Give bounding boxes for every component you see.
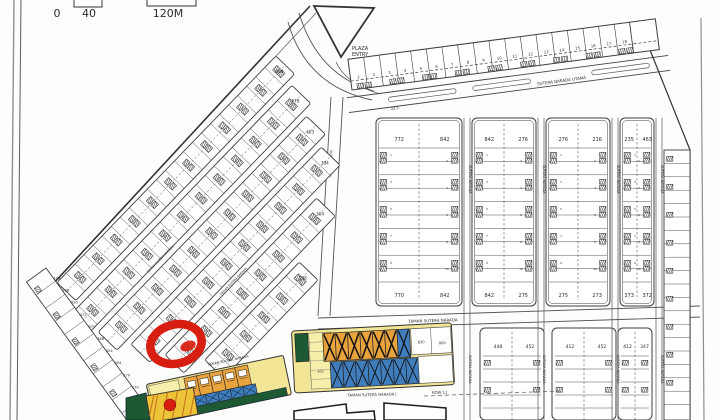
carport-hatch-icon <box>526 212 532 217</box>
boundary-lot-number: 304 <box>114 361 122 365</box>
house-footprint <box>238 369 247 377</box>
carport-hatch-icon <box>622 360 628 365</box>
carport-hatch-icon <box>627 47 634 53</box>
tiny-lot-number: 5 <box>390 207 392 211</box>
street-name-vertical: SUTERA NARADA <box>660 165 664 194</box>
carport-hatch-icon <box>667 324 673 329</box>
carport-hatch-icon <box>452 233 458 238</box>
carport-hatch-icon <box>606 387 612 392</box>
street-name-taman-row: TAMAN SUTERA NARADA I <box>346 391 396 397</box>
block-number: 452 <box>526 344 535 350</box>
tiny-lot-number: 1 <box>390 153 392 157</box>
carport-hatch-icon <box>520 61 527 67</box>
carport-hatch-icon <box>644 233 650 238</box>
carport-hatch-icon <box>667 240 673 245</box>
tiny-lot-number: 10 <box>593 267 597 271</box>
tiny-lot-number: 8 <box>638 240 640 244</box>
carport-hatch-icon <box>600 179 606 184</box>
carport-hatch-icon <box>526 239 532 244</box>
tiny-lot-number: 7 <box>560 234 562 238</box>
carport-hatch-icon <box>380 206 386 211</box>
carport-hatch-icon <box>561 56 568 62</box>
vertical-road-edge <box>330 97 343 316</box>
carport-hatch-icon <box>455 70 462 76</box>
house-footprint <box>187 380 196 388</box>
carport-hatch-icon <box>553 57 560 63</box>
lot-number-403: 403 <box>317 369 323 373</box>
tiny-lot-number: 7 <box>486 234 488 238</box>
carport-hatch-icon <box>550 233 556 238</box>
carport-hatch-icon <box>619 48 626 54</box>
boundary-lot-number: 324 <box>106 349 114 353</box>
row-11-label: ROW 11 <box>432 390 448 395</box>
tiny-lot-number: 4 <box>594 186 596 190</box>
carport-hatch-icon <box>452 239 458 244</box>
carport-hatch-icon <box>624 158 630 163</box>
carport-hatch-icon <box>644 158 650 163</box>
carport-hatch-icon <box>476 239 482 244</box>
scale-tick-120m: 120M <box>153 7 184 20</box>
carport-hatch-icon <box>600 206 606 211</box>
block-number: 842 <box>485 293 495 299</box>
tiny-lot-number: 6 <box>520 213 522 217</box>
carport-hatch-icon <box>600 158 606 163</box>
block-number: 842 <box>440 137 450 143</box>
carport-hatch-icon <box>452 212 458 217</box>
street-name-vertical: SUTERA NARADA <box>468 355 472 384</box>
carport-hatch-icon <box>476 266 482 271</box>
carport-hatch-icon <box>526 152 532 157</box>
carport-hatch-icon <box>463 69 470 75</box>
tiny-lot-number: 1 <box>634 153 636 157</box>
scale-tick-0: 0 <box>54 7 61 20</box>
tiny-lot-number: 7 <box>390 234 392 238</box>
carport-hatch-icon <box>528 60 535 66</box>
carport-hatch-icon <box>380 179 386 184</box>
block-number: 276 <box>559 137 569 143</box>
tiny-lot-number: 7 <box>634 234 636 238</box>
house-footprint <box>213 375 222 383</box>
street-name-vertical: SUTERA NARADA <box>660 355 664 384</box>
house-footprint <box>200 377 209 385</box>
carport-hatch-icon <box>667 212 673 217</box>
carport-hatch-icon <box>624 260 630 265</box>
tiny-lot-number: 6 <box>594 213 596 217</box>
carport-hatch-icon <box>452 260 458 265</box>
tiny-lot-number: 2 <box>520 159 522 163</box>
street-width-dim: 22.5 <box>391 106 399 111</box>
carport-hatch-icon <box>452 206 458 211</box>
carport-hatch-icon <box>484 387 490 392</box>
mid-street-edge <box>318 306 700 318</box>
carport-hatch-icon <box>644 206 650 211</box>
east-lot-column <box>664 150 690 420</box>
carport-hatch-icon <box>452 266 458 271</box>
carport-hatch-icon <box>476 158 482 163</box>
tiny-lot-number: 9 <box>634 261 636 265</box>
strip-corner-number: 198 <box>299 275 307 280</box>
carport-hatch-icon <box>496 65 503 71</box>
tiny-lot-number: 1 <box>486 153 488 157</box>
building-outline <box>384 403 446 420</box>
carport-hatch-icon <box>526 158 532 163</box>
carport-hatch-icon <box>600 266 606 271</box>
tiny-lot-number: 3 <box>390 180 392 184</box>
carport-hatch-icon <box>398 77 405 83</box>
carport-hatch-icon <box>624 179 630 184</box>
carport-hatch-icon <box>380 266 386 271</box>
carport-hatch-icon <box>624 185 630 190</box>
block-number: 372 <box>642 293 652 299</box>
carport-hatch-icon <box>476 212 482 217</box>
carport-hatch-icon <box>484 360 490 365</box>
carport-hatch-icon <box>644 185 650 190</box>
carport-hatch-icon <box>550 152 556 157</box>
carport-hatch-icon <box>600 239 606 244</box>
tiny-lot-number: 2 <box>594 159 596 163</box>
page-edge-left-outer <box>10 0 14 420</box>
street-name-vertical: SUTERA NARADA <box>616 165 620 194</box>
carport-hatch-icon <box>380 239 386 244</box>
tiny-lot-number: 8 <box>594 240 596 244</box>
block-number: 842 <box>485 137 495 143</box>
tiny-lot-number: 10 <box>519 267 523 271</box>
page-edge-right <box>701 18 704 420</box>
boundary-lot-number: 199 <box>54 277 62 281</box>
carport-hatch-icon <box>644 239 650 244</box>
carport-hatch-icon <box>556 360 562 365</box>
tiny-lot-number: 5 <box>560 207 562 211</box>
carport-hatch-icon <box>644 266 650 271</box>
carport-hatch-icon <box>667 156 673 161</box>
carport-hatch-icon <box>624 212 630 217</box>
carport-hatch-icon <box>622 387 628 392</box>
carport-hatch-icon <box>476 179 482 184</box>
carport-hatch-icon <box>600 260 606 265</box>
strip-corner-number: 304 <box>316 211 324 216</box>
carport-hatch-icon <box>430 73 437 79</box>
tiny-lot-number: 9 <box>390 261 392 265</box>
carport-hatch-icon <box>667 184 673 189</box>
carport-hatch-icon <box>526 233 532 238</box>
street-name-vertical: SUTERA NARADA <box>542 355 546 384</box>
tiny-lot-number: 4 <box>446 186 448 190</box>
carport-hatch-icon <box>550 266 556 271</box>
strip-corner-number: 394 <box>321 160 329 165</box>
carport-hatch-icon <box>452 152 458 157</box>
carport-hatch-icon <box>476 152 482 157</box>
boundary-lot-number: 788 <box>62 289 70 293</box>
carport-hatch-icon <box>452 158 458 163</box>
tiny-lot-number: 6 <box>638 213 640 217</box>
site-plan-page: 0 40 120M PLAZA ENTRY STATEMENT 15 x 20 … <box>0 0 720 420</box>
carport-hatch-icon <box>600 233 606 238</box>
carport-hatch-icon <box>422 74 429 80</box>
carport-hatch-icon <box>644 179 650 184</box>
tiny-lot-number: 5 <box>634 207 636 211</box>
carport-hatch-icon <box>624 152 630 157</box>
carport-hatch-icon <box>667 268 673 273</box>
carport-hatch-icon <box>550 185 556 190</box>
carport-hatch-icon <box>534 360 540 365</box>
tiny-lot-number: 5 <box>486 207 488 211</box>
carport-hatch-icon <box>476 233 482 238</box>
carport-hatch-icon <box>390 79 397 85</box>
boundary-lot-number: 375 <box>88 325 95 329</box>
carport-hatch-icon <box>380 260 386 265</box>
tiny-lot-number: 8 <box>520 240 522 244</box>
carport-hatch-icon <box>550 179 556 184</box>
boundary-lot-number: 279 <box>123 373 131 377</box>
carport-hatch-icon <box>644 212 650 217</box>
block-number: 216 <box>592 137 602 143</box>
block-number: 448 <box>494 344 503 350</box>
carport-hatch-icon <box>624 266 630 271</box>
carport-hatch-icon <box>476 185 482 190</box>
carport-hatch-icon <box>365 82 372 88</box>
strip-corner-number: 403 <box>306 130 314 135</box>
carport-hatch-icon <box>380 212 386 217</box>
house-footprint <box>225 372 234 380</box>
carport-hatch-icon <box>642 360 648 365</box>
carport-hatch-icon <box>526 206 532 211</box>
street-name-vertical: SUTERA NARADA <box>616 355 620 384</box>
carport-hatch-icon <box>644 260 650 265</box>
block-number: 275 <box>559 293 569 299</box>
block-number: 842 <box>440 293 450 299</box>
scale-bar-segment <box>74 0 102 7</box>
tiny-lot-number: 3 <box>560 180 562 184</box>
carport-hatch-icon <box>488 66 495 72</box>
carport-hatch-icon <box>550 158 556 163</box>
carport-hatch-icon <box>452 179 458 184</box>
tiny-lot-number: 2 <box>638 159 640 163</box>
carport-hatch-icon <box>550 260 556 265</box>
white-lot <box>418 355 453 384</box>
block-number: 412 <box>623 344 632 350</box>
carport-hatch-icon <box>452 185 458 190</box>
block-number: 412 <box>566 344 575 350</box>
block-number: 770 <box>394 293 404 299</box>
tiny-lot-number: 3 <box>634 180 636 184</box>
carport-hatch-icon <box>526 266 532 271</box>
carport-hatch-icon <box>550 206 556 211</box>
scale-bar: 0 40 120M <box>54 0 197 20</box>
carport-hatch-icon <box>624 233 630 238</box>
tiny-lot-number: 6 <box>446 213 448 217</box>
street-name-vertical: SUTERA NARADA <box>542 165 546 194</box>
page-edge-left-inner <box>17 0 21 420</box>
carport-hatch-icon <box>600 152 606 157</box>
carport-hatch-icon <box>380 152 386 157</box>
carport-hatch-icon <box>357 83 364 89</box>
carport-hatch-icon <box>586 53 593 59</box>
colored-lot-panel: 830 800 403 <box>291 323 454 393</box>
building-outline <box>294 404 375 420</box>
boundary-lot-number: 472 <box>80 313 87 317</box>
carport-hatch-icon <box>624 206 630 211</box>
block-number: 463 <box>642 137 652 143</box>
lot-number-830: 830 <box>418 340 426 344</box>
carport-hatch-icon <box>600 212 606 217</box>
tiny-lot-number: 9 <box>486 261 488 265</box>
green-lot <box>295 333 309 362</box>
tiny-lot-number: 10 <box>445 267 449 271</box>
block-number: 235 <box>624 137 634 143</box>
carport-hatch-icon <box>476 206 482 211</box>
carport-hatch-icon <box>667 352 673 357</box>
tiny-lot-number: 3 <box>486 180 488 184</box>
shop-row: 15 x 20 577 123456789101112131415161718 <box>348 19 659 90</box>
scale-bar-segment <box>147 0 196 6</box>
carport-hatch-icon <box>667 380 673 385</box>
tiny-lot-number: 4 <box>520 186 522 190</box>
block-number: 373 <box>624 293 634 299</box>
block-number: 276 <box>518 137 528 143</box>
carport-hatch-icon <box>594 52 601 58</box>
boundary-lot-number: 520 <box>71 301 79 305</box>
strip-corner-number: 678 <box>291 99 299 104</box>
carport-hatch-icon <box>606 360 612 365</box>
scale-tick-40: 40 <box>82 7 96 20</box>
carport-hatch-icon <box>526 185 532 190</box>
block-number: 275 <box>518 293 528 299</box>
carport-hatch-icon <box>526 179 532 184</box>
carport-hatch-icon <box>667 296 673 301</box>
strip-corner-number: 800 <box>275 69 283 74</box>
carport-hatch-icon <box>380 185 386 190</box>
carport-hatch-icon <box>380 233 386 238</box>
block-number: 347 <box>640 344 649 350</box>
carport-hatch-icon <box>600 185 606 190</box>
carport-hatch-icon <box>550 239 556 244</box>
carport-hatch-icon <box>526 260 532 265</box>
carport-hatch-icon <box>642 387 648 392</box>
tiny-lot-number: 8 <box>446 240 448 244</box>
carport-hatch-icon <box>624 239 630 244</box>
boundary-lot-number: 348 <box>97 337 105 341</box>
block-number: 273 <box>592 293 602 299</box>
lot-number-800: 800 <box>439 341 447 345</box>
site-plan-drawing: 0 40 120M PLAZA ENTRY STATEMENT 15 x 20 … <box>0 0 720 420</box>
carport-hatch-icon <box>380 158 386 163</box>
tiny-lot-number: 10 <box>637 267 641 271</box>
tiny-lot-number: 9 <box>560 261 562 265</box>
tiny-lot-number: 2 <box>446 159 448 163</box>
block-number: 452 <box>598 344 607 350</box>
boundary-lot-number: 270 <box>132 385 140 389</box>
carport-hatch-icon <box>476 260 482 265</box>
tiny-lot-number: 4 <box>638 186 640 190</box>
tiny-lot-number: 1 <box>560 153 562 157</box>
block-number: 772 <box>394 137 404 143</box>
street-name-vertical: SUTERA NARADA <box>468 165 472 194</box>
carport-hatch-icon <box>644 152 650 157</box>
carport-hatch-icon <box>550 212 556 217</box>
